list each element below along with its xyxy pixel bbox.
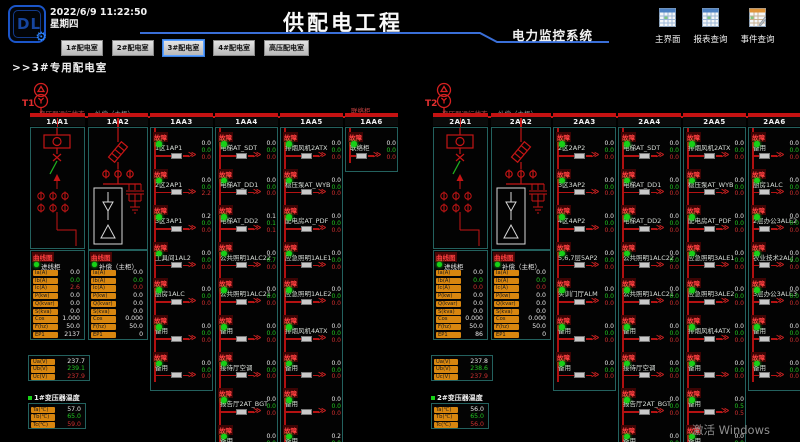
feeder-values: 0.00.00.0 bbox=[734, 361, 744, 382]
mini-value: 56.0 bbox=[470, 422, 484, 429]
fault-status-label: 故障 bbox=[218, 169, 233, 179]
feeder-line bbox=[687, 375, 704, 377]
breaker-symbol[interactable] bbox=[574, 226, 585, 232]
flow-arrow-icon: ≫ bbox=[253, 188, 261, 196]
breaker-symbol[interactable] bbox=[704, 226, 715, 232]
meter-value: 0.0 bbox=[133, 301, 143, 308]
breaker-symbol[interactable] bbox=[574, 189, 585, 195]
breaker-symbol[interactable] bbox=[301, 226, 312, 232]
feeder-values: 0.00.00.0 bbox=[789, 141, 799, 162]
meter-status-dot-icon bbox=[34, 262, 39, 267]
meter-param-label: F(hz) bbox=[436, 324, 461, 330]
meter-param-label: P(kw) bbox=[91, 293, 116, 299]
mini-value: 237.9 bbox=[67, 374, 85, 381]
green-square-icon bbox=[431, 396, 435, 400]
flow-arrow-icon: ≫ bbox=[253, 334, 261, 342]
feeder-value: 0.0 bbox=[331, 228, 341, 235]
status-dot-icon bbox=[286, 214, 292, 220]
breaker-symbol[interactable] bbox=[639, 262, 650, 268]
meter-value: 0.0 bbox=[70, 301, 80, 308]
tool-label: 事件查询 bbox=[741, 33, 775, 45]
feeder-value: 0.0 bbox=[331, 411, 341, 418]
feeder-row: 故障5,6,7层5AP2≫0.00.00.0 bbox=[554, 241, 615, 277]
flow-arrow-icon: ≫ bbox=[253, 297, 261, 305]
meter-table-incoming: 曲线图进线柜Ia(A)0.0Ib(A)0.0Ic(A)0.0P(kw)0.0Q(… bbox=[433, 250, 488, 340]
event-log-icon bbox=[749, 8, 766, 27]
feeder-value: 0.1 bbox=[266, 228, 276, 235]
flow-arrow-icon: ≫ bbox=[591, 334, 599, 342]
feeder-line bbox=[154, 375, 171, 377]
status-dot-icon bbox=[689, 324, 695, 330]
breaker-symbol[interactable] bbox=[171, 299, 182, 305]
breaker-symbol[interactable] bbox=[759, 336, 770, 342]
flow-arrow-icon: ≫ bbox=[318, 371, 326, 379]
breaker-symbol[interactable] bbox=[356, 153, 367, 159]
spreadsheet-icon bbox=[702, 8, 719, 27]
breaker-symbol[interactable] bbox=[639, 226, 650, 232]
breaker-symbol[interactable] bbox=[301, 299, 312, 305]
flow-arrow-icon: ≫ bbox=[318, 151, 326, 159]
panel-t2: T2变压器运行状态补偿（主柜）2AA12AA22AA3故障2区2AP2≫0.00… bbox=[428, 85, 800, 442]
column-header-1AA3[interactable]: 1AA3 bbox=[150, 113, 213, 126]
feeder-line bbox=[154, 301, 171, 303]
feeder-row: 故障电梯AT_DD2≫0.10.10.1 bbox=[216, 204, 277, 240]
feeder-values: 0.00.00.0 bbox=[669, 361, 679, 382]
flow-arrow-icon: ≫ bbox=[253, 151, 261, 159]
feeder-row: 故障备用≫0.00.00.0 bbox=[554, 351, 615, 387]
status-dot-icon bbox=[156, 287, 162, 293]
flow-arrow-icon: ≫ bbox=[776, 297, 784, 305]
feeder-value: 0.0 bbox=[604, 265, 614, 272]
feeder-line bbox=[219, 375, 236, 377]
status-dot-icon bbox=[624, 324, 630, 330]
meter-value: 0.0 bbox=[473, 293, 483, 300]
meter-param-label: Ia(A) bbox=[494, 270, 519, 276]
meter-row: F(hz)50.0 bbox=[494, 324, 550, 331]
meter-param-label: S(kva) bbox=[91, 309, 116, 315]
feeder-row: 故障电梯AT_DD1≫0.00.00.0 bbox=[619, 168, 680, 204]
meter-param-label: EP1 bbox=[91, 332, 116, 338]
meter-status-dot-icon bbox=[92, 262, 97, 267]
column-header-label: 2AA6 bbox=[748, 118, 800, 126]
meter-param-label: Ic(A) bbox=[494, 285, 519, 291]
status-dot-icon bbox=[689, 361, 695, 367]
feeder-line bbox=[284, 228, 301, 230]
feeder-values: 0.00.70.0 bbox=[266, 251, 276, 272]
meter-value: 0.000 bbox=[465, 316, 483, 323]
temperature-title: 1#变压器温度 bbox=[28, 393, 80, 403]
breaker-symbol[interactable] bbox=[301, 189, 312, 195]
status-dot-icon bbox=[754, 141, 760, 147]
meter-row: Ia(A)0.0 bbox=[91, 270, 147, 277]
feeder-row: 故障报告厅2AT_BGT≫0.00.00.0 bbox=[216, 387, 277, 423]
column-box-2AA1 bbox=[433, 127, 488, 249]
feeder-value: 0.0 bbox=[789, 265, 799, 272]
mini-param-label: Tc(℃) bbox=[31, 422, 55, 428]
feeder-row: 故障备用≫0.00.00.0 bbox=[281, 351, 342, 387]
meter-row: EP186 bbox=[436, 332, 487, 339]
column-header-1AA4[interactable]: 1AA4 bbox=[215, 113, 278, 126]
feeder-value: 0.0 bbox=[201, 228, 211, 235]
feeder-row: 故障备用≫0.00.00.0 bbox=[281, 387, 342, 423]
feeder-value: 0.0 bbox=[266, 374, 276, 381]
feeder-values: 0.00.00.0 bbox=[604, 251, 614, 272]
incoming-oneline-diagram bbox=[434, 128, 487, 248]
breaker-symbol[interactable] bbox=[759, 299, 770, 305]
feeder-values: 0.00.00.0 bbox=[604, 214, 614, 235]
mini-row: Uc(V)237.9 bbox=[434, 374, 492, 381]
feeder-value: 0.0 bbox=[201, 301, 211, 308]
breaker-symbol[interactable] bbox=[639, 336, 650, 342]
status-dot-icon bbox=[559, 324, 565, 330]
feeder-name: 公共照明1ALC21 bbox=[623, 288, 674, 298]
fault-status-label: 故障 bbox=[751, 352, 766, 362]
mini-param-label: Ua(V) bbox=[434, 359, 458, 365]
breaker-symbol[interactable] bbox=[759, 226, 770, 232]
feeder-value: 0.0 bbox=[331, 155, 341, 162]
feeder-value: 0.0 bbox=[331, 374, 341, 381]
column-header-1AA5[interactable]: 1AA5 bbox=[280, 113, 343, 126]
meter-param-label: Ic(A) bbox=[436, 285, 461, 291]
flow-arrow-icon: ≫ bbox=[188, 297, 196, 305]
feeder-row: 故障电梯AT_SDT≫0.00.00.0 bbox=[619, 131, 680, 167]
breaker-symbol[interactable] bbox=[171, 226, 182, 232]
meter-param-label: Ia(A) bbox=[33, 270, 58, 276]
feeder-values: 0.00.00.0 bbox=[604, 324, 614, 345]
meter-value: 0.0 bbox=[536, 278, 546, 285]
nav-room-button-1[interactable]: 1#配电室 bbox=[61, 40, 103, 56]
meter-cabinet-name: 补偿（主柜） bbox=[99, 261, 138, 271]
flow-arrow-icon: ≫ bbox=[318, 188, 326, 196]
feeder-line bbox=[687, 301, 704, 303]
breaker-symbol[interactable] bbox=[171, 153, 182, 159]
feeder-row: 故障2区2AP2≫0.00.00.0 bbox=[554, 131, 615, 167]
status-dot-icon bbox=[559, 287, 565, 293]
status-dot-icon bbox=[754, 214, 760, 220]
meter-value: 0.0 bbox=[133, 309, 143, 316]
feeder-values: 0.00.00.0 bbox=[201, 361, 211, 382]
breaker-symbol[interactable] bbox=[301, 372, 312, 378]
breaker-symbol[interactable] bbox=[301, 409, 312, 415]
meter-param-label: Ic(A) bbox=[91, 285, 116, 291]
feeder-values: 0.00.00.0 bbox=[669, 397, 679, 418]
status-dot-icon bbox=[689, 178, 695, 184]
feeder-value: 0.0 bbox=[669, 265, 679, 272]
meter-param-label: S(kva) bbox=[436, 309, 461, 315]
fault-status-label: 故障 bbox=[556, 169, 571, 179]
feeder-line bbox=[284, 375, 301, 377]
breaker-symbol[interactable] bbox=[301, 336, 312, 342]
fault-status-label: 故障 bbox=[751, 169, 766, 179]
meter-value: 0.0 bbox=[473, 270, 483, 277]
status-dot-icon bbox=[559, 361, 565, 367]
status-dot-icon bbox=[689, 141, 695, 147]
feeder-value: 0.0 bbox=[266, 338, 276, 345]
breaker-symbol[interactable] bbox=[236, 409, 247, 415]
column-box-2AA2 bbox=[491, 127, 551, 250]
flow-arrow-icon: ≫ bbox=[776, 151, 784, 159]
flow-arrow-icon: ≫ bbox=[318, 261, 326, 269]
feeder-values: 0.00.00.0 bbox=[266, 434, 276, 442]
feeder-row: 故障备用≫0.00.00.0 bbox=[151, 351, 212, 387]
meter-param-label: Ib(A) bbox=[91, 278, 116, 284]
temperature-table: Ta(℃)56.0Tb(℃)65.0Tc(℃)56.0 bbox=[431, 403, 489, 429]
feeder-values: 0.00.00.0 bbox=[734, 214, 744, 235]
flow-arrow-icon: ≫ bbox=[188, 371, 196, 379]
feeder-row: 故障公共照明1ALC21≫0.00.00.0 bbox=[216, 277, 277, 313]
column-header-1AA6[interactable]: 1AA6 bbox=[345, 113, 398, 126]
feeder-row: 故障备用≫0.00.00.0 bbox=[619, 424, 680, 442]
breaker-symbol[interactable] bbox=[574, 262, 585, 268]
feeder-values: 0.00.00.0 bbox=[669, 251, 679, 272]
feeder-value: 0.0 bbox=[331, 338, 341, 345]
feeder-row: 故障备用≫0.00.00.0 bbox=[216, 314, 277, 350]
compensation-oneline-diagram bbox=[492, 128, 550, 250]
feeder-row: 故障备用≫0.00.00.0 bbox=[216, 424, 277, 442]
status-dot-icon bbox=[286, 434, 292, 440]
breaker-symbol[interactable] bbox=[639, 153, 650, 159]
meter-row: EP12137 bbox=[33, 332, 84, 339]
status-dot-icon bbox=[624, 251, 630, 257]
flow-arrow-icon: ≫ bbox=[591, 151, 599, 159]
meter-value: 0.0 bbox=[473, 301, 483, 308]
breaker-symbol[interactable] bbox=[704, 153, 715, 159]
column-header-bar bbox=[748, 113, 800, 117]
feeder-line bbox=[752, 301, 759, 303]
feeder-value: 0.0 bbox=[789, 191, 799, 198]
flow-arrow-icon: ≫ bbox=[721, 371, 729, 379]
feeder-values: 0.00.00.0 bbox=[266, 178, 276, 199]
scada-screen: DL ⚙ 2022/6/9 11:22:50 星期四 供配电工程 电力监控系统 … bbox=[0, 0, 800, 442]
meter-value: 50.0 bbox=[469, 324, 483, 331]
flow-arrow-icon: ≫ bbox=[656, 334, 664, 342]
mini-value: 237.9 bbox=[470, 374, 488, 381]
status-dot-icon bbox=[754, 178, 760, 184]
breaker-symbol[interactable] bbox=[236, 299, 247, 305]
breaker-symbol[interactable] bbox=[236, 189, 247, 195]
column-header-2AA4[interactable]: 2AA4 bbox=[618, 113, 681, 126]
panel-t1: T1变压器运行状态补偿（主柜）联络柜1AA11AA21AA3故障1区1AP1≫0… bbox=[25, 85, 400, 442]
status-dot-icon bbox=[286, 361, 292, 367]
breaker-symbol[interactable] bbox=[639, 299, 650, 305]
breaker-symbol[interactable] bbox=[301, 262, 312, 268]
datetime-text: 2022/6/9 11:22:50 bbox=[50, 7, 147, 19]
column-drop-line bbox=[57, 118, 59, 127]
feeder-value: 2.2 bbox=[201, 191, 211, 198]
meter-param-label: Cos bbox=[494, 316, 519, 322]
feeder-row: 故障公共照明1ALC22≫0.00.70.0 bbox=[216, 241, 277, 277]
feeder-value: 0.0 bbox=[669, 301, 679, 308]
feeder-value: 0.0 bbox=[669, 191, 679, 198]
feeder-row: 故障备用≫0.00.50.5 bbox=[684, 387, 745, 423]
breaker-symbol[interactable] bbox=[704, 299, 715, 305]
breaker-symbol[interactable] bbox=[759, 189, 770, 195]
feeder-row: 故障1区1AP1≫0.00.00.0 bbox=[151, 131, 212, 167]
status-dot-icon bbox=[286, 251, 292, 257]
breaker-symbol[interactable] bbox=[704, 262, 715, 268]
feeder-values: 0.00.00.0 bbox=[734, 287, 744, 308]
meter-value: 0.0 bbox=[133, 293, 143, 300]
feeder-values: 0.00.00.0 bbox=[789, 361, 799, 382]
column-header-2AA3[interactable]: 2AA3 bbox=[553, 113, 616, 126]
mini-value: 59.0 bbox=[67, 422, 81, 429]
breaker-symbol[interactable] bbox=[171, 189, 182, 195]
feeder-value: 0.0 bbox=[789, 301, 799, 308]
feeder-values: 0.00.00.0 bbox=[331, 251, 341, 272]
breaker-symbol[interactable] bbox=[704, 189, 715, 195]
feeder-line bbox=[687, 155, 704, 157]
feeder-row: 故障公共照明1ALC22≫0.00.00.0 bbox=[619, 241, 680, 277]
breaker-symbol[interactable] bbox=[236, 226, 247, 232]
meter-value: 50.0 bbox=[66, 324, 80, 331]
breaker-symbol[interactable] bbox=[301, 153, 312, 159]
breaker-symbol[interactable] bbox=[574, 299, 585, 305]
feeder-values: 0.00.00.0 bbox=[331, 287, 341, 308]
system-subtitle: 电力监控系统 bbox=[512, 25, 593, 44]
breaker-symbol[interactable] bbox=[704, 372, 715, 378]
breaker-symbol[interactable] bbox=[704, 336, 715, 342]
mini-param-label: Ta(℃) bbox=[31, 407, 55, 413]
column-box-2AA3: 故障2区2AP2≫0.00.00.0故障3区3AP2≫0.00.00.0故障4区… bbox=[553, 127, 616, 391]
flow-arrow-icon: ≫ bbox=[656, 297, 664, 305]
feeder-line bbox=[752, 192, 759, 194]
breaker-symbol[interactable] bbox=[639, 189, 650, 195]
event-query-button[interactable]: 事件查询 bbox=[741, 8, 775, 45]
breaker-symbol[interactable] bbox=[236, 336, 247, 342]
column-header-label: 2AA4 bbox=[618, 118, 681, 126]
nav-room-button-5[interactable]: 高压配电室 bbox=[264, 40, 309, 56]
nav-room-button-3[interactable]: 3#配电室 bbox=[163, 40, 205, 56]
feeder-values: 0.00.00.0 bbox=[734, 251, 744, 272]
meter-row: Q(kvar)0.0 bbox=[91, 301, 147, 308]
feeder-row: 故障电梯AT_DD2≫0.00.00.0 bbox=[619, 204, 680, 240]
breaker-symbol[interactable] bbox=[574, 336, 585, 342]
meter-param-label: Q(kvar) bbox=[436, 301, 461, 307]
status-dot-icon bbox=[754, 287, 760, 293]
feeder-value: 0.0 bbox=[266, 411, 276, 418]
breaker-symbol[interactable] bbox=[574, 372, 585, 378]
feeder-value: 0.0 bbox=[201, 155, 211, 162]
flow-arrow-icon: ≫ bbox=[721, 334, 729, 342]
status-dot-icon bbox=[221, 141, 227, 147]
feeder-values: 0.00.00.0 bbox=[266, 287, 276, 308]
meter-value: 0.0 bbox=[536, 293, 546, 300]
meter-value: 0.0 bbox=[536, 301, 546, 308]
meter-value: 0.000 bbox=[125, 316, 143, 323]
breaker-symbol[interactable] bbox=[639, 372, 650, 378]
meter-status-dot-icon bbox=[495, 262, 500, 267]
temperature-title-text: 2#变压器温度 bbox=[437, 394, 483, 402]
feeder-line bbox=[284, 338, 301, 340]
feeder-row: 故障备用≫0.00.00.0 bbox=[554, 314, 615, 350]
meter-cabinet-name: 进线柜 bbox=[444, 261, 464, 271]
meter-value: 0 bbox=[542, 332, 546, 339]
column-box-1AA5: 故障排烟风机2ATX≫0.00.00.0故障稳压泵AT_WYB≫0.00.00.… bbox=[280, 127, 343, 442]
breaker-symbol[interactable] bbox=[171, 372, 182, 378]
breaker-symbol[interactable] bbox=[759, 372, 770, 378]
feeder-value: 0.0 bbox=[604, 301, 614, 308]
breadcrumb: >>3#专用配电室 bbox=[12, 60, 107, 75]
status-dot-icon bbox=[286, 324, 292, 330]
feeder-row: 故障4区4AP2≫0.00.00.0 bbox=[554, 204, 615, 240]
breaker-symbol[interactable] bbox=[759, 153, 770, 159]
breaker-symbol[interactable] bbox=[236, 153, 247, 159]
fault-status-label: 故障 bbox=[283, 352, 298, 362]
column-header-bar bbox=[280, 113, 343, 117]
feeder-values: 0.00.00.0 bbox=[669, 178, 679, 199]
flow-arrow-icon: ≫ bbox=[721, 188, 729, 196]
main-screen-button[interactable]: 主界面 bbox=[655, 8, 681, 45]
mini-value: 65.0 bbox=[470, 414, 484, 421]
feeder-value: 0.0 bbox=[331, 191, 341, 198]
fault-status-label: 故障 bbox=[621, 352, 636, 362]
feeder-value: 0.0 bbox=[604, 374, 614, 381]
column-header-2AA5[interactable]: 2AA5 bbox=[683, 113, 746, 126]
feeder-values: 0.00.00.0 bbox=[266, 324, 276, 345]
app-logo: DL ⚙ bbox=[8, 5, 46, 43]
meter-row: Q(kvar)0.0 bbox=[494, 301, 550, 308]
feeder-value: 0.0 bbox=[266, 191, 276, 198]
feeder-values: 0.00.00.0 bbox=[201, 287, 211, 308]
breaker-symbol[interactable] bbox=[171, 336, 182, 342]
feeder-values: 0.00.00.0 bbox=[604, 178, 614, 199]
breaker-symbol[interactable] bbox=[236, 262, 247, 268]
breaker-symbol[interactable] bbox=[171, 262, 182, 268]
breaker-symbol[interactable] bbox=[759, 262, 770, 268]
feeder-value: 0.0 bbox=[669, 338, 679, 345]
feeder-values: 0.00.00.0 bbox=[266, 397, 276, 418]
feeder-row: 故障备用≫0.00.00.0 bbox=[749, 131, 800, 167]
feeder-value: 0.0 bbox=[734, 155, 744, 162]
nav-room-button-2[interactable]: 2#配电室 bbox=[112, 40, 154, 56]
meter-value: 0.0 bbox=[473, 278, 483, 285]
status-dot-icon bbox=[754, 324, 760, 330]
meter-value: 0.0 bbox=[133, 278, 143, 285]
feeder-row: 故障排烟风机4ATX≫0.00.00.0 bbox=[684, 314, 745, 350]
column-box-2AA4: 故障电梯AT_SDT≫0.00.00.0故障电梯AT_DD1≫0.00.00.0… bbox=[618, 127, 681, 442]
temperature-table: Ta(℃)57.0Tb(℃)65.0Tc(℃)59.0 bbox=[28, 403, 86, 429]
feeder-value: 0.0 bbox=[201, 338, 211, 345]
flow-arrow-icon: ≫ bbox=[188, 334, 196, 342]
status-dot-icon bbox=[689, 397, 695, 403]
report-query-button[interactable]: 报表查询 bbox=[694, 8, 728, 45]
column-box-1AA4: 故障电梯AT_SDT≫0.00.00.0故障电梯AT_DD1≫0.00.00.0… bbox=[215, 127, 278, 442]
breaker-symbol[interactable] bbox=[236, 372, 247, 378]
mini-value: 238.6 bbox=[470, 366, 488, 373]
spreadsheet-icon-wrap bbox=[694, 8, 728, 31]
feeder-row: 故障备用≫0.00.00.0 bbox=[749, 351, 800, 387]
meter-param-label: EP1 bbox=[436, 332, 461, 338]
status-dot-icon bbox=[559, 251, 565, 257]
flow-arrow-icon: ≫ bbox=[656, 188, 664, 196]
breaker-symbol[interactable] bbox=[704, 409, 715, 415]
feeder-line bbox=[557, 338, 574, 340]
feeder-line bbox=[284, 411, 301, 413]
meter-param-label: Ic(A) bbox=[33, 285, 58, 291]
mini-param-label: Ta(℃) bbox=[434, 407, 458, 413]
column-header-2AA6[interactable]: 2AA6 bbox=[748, 113, 800, 126]
status-dot-icon bbox=[221, 287, 227, 293]
status-dot-icon bbox=[689, 214, 695, 220]
meter-row: Q(kvar)0.0 bbox=[436, 301, 487, 308]
feeder-line bbox=[154, 155, 171, 157]
nav-room-button-4[interactable]: 4#配电室 bbox=[213, 40, 255, 56]
mini-param-label: Tc(℃) bbox=[434, 422, 458, 428]
breaker-symbol[interactable] bbox=[639, 409, 650, 415]
meter-param-label: P(kw) bbox=[436, 293, 461, 299]
flow-arrow-icon: ≫ bbox=[591, 371, 599, 379]
breaker-symbol[interactable] bbox=[574, 153, 585, 159]
